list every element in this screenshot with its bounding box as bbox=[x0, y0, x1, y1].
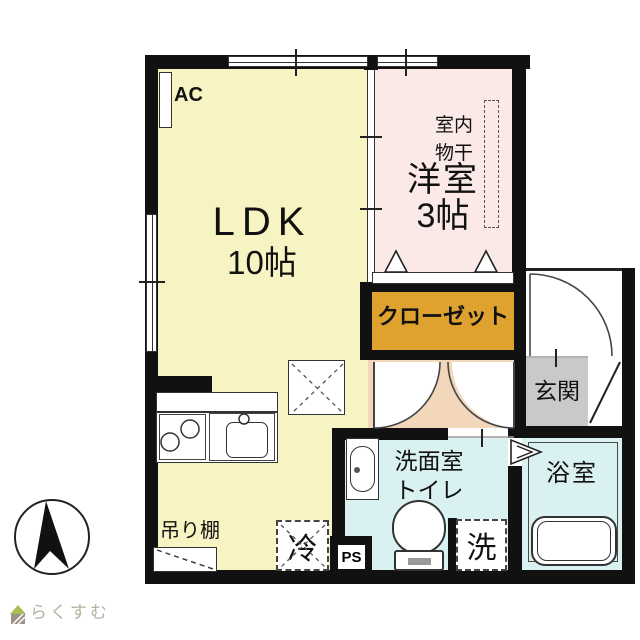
refrigerator-label: 冷 bbox=[288, 524, 318, 568]
washer-space: 洗 bbox=[456, 519, 507, 571]
entrance-door-swing-area bbox=[526, 270, 622, 358]
house-icon bbox=[10, 605, 26, 624]
wall-wing-top-line bbox=[526, 268, 622, 271]
north-compass-icon bbox=[15, 500, 89, 574]
closet-label: クローゼット bbox=[360, 305, 526, 329]
overhead-cupboard bbox=[288, 360, 345, 415]
wall-kitchen-stub bbox=[150, 376, 212, 392]
wall-bottom bbox=[145, 570, 635, 584]
washroom-line1: 洗面室 bbox=[350, 447, 508, 476]
window-top-western bbox=[377, 56, 438, 67]
entrance-label: 玄関 bbox=[526, 379, 588, 404]
hanging-shelf-box bbox=[153, 547, 217, 572]
bathtub-inner bbox=[537, 521, 611, 561]
indoor-drying-line1: 室内 bbox=[416, 112, 492, 140]
pipe-space-box: PS bbox=[336, 543, 367, 571]
ldk-room-label: LDK bbox=[156, 200, 368, 244]
washroom-line2: トイレ bbox=[350, 476, 508, 505]
bathroom-label: 浴室 bbox=[522, 461, 622, 487]
pipe-space-label: PS bbox=[341, 549, 361, 566]
wall-right-main bbox=[512, 55, 526, 292]
toilet-bowl bbox=[392, 500, 446, 554]
ldk-size-label: 10帖 bbox=[156, 245, 368, 281]
ldk-name: LDK bbox=[213, 200, 312, 244]
wall-bath-separator bbox=[508, 466, 522, 570]
refrigerator-space: 冷 bbox=[276, 520, 329, 571]
entrance-door-box bbox=[588, 358, 622, 426]
western-room-size: 3帖 bbox=[374, 198, 512, 235]
kitchen-sink-basin bbox=[226, 422, 268, 458]
indoor-drying-note: 室内 物干 bbox=[416, 112, 492, 167]
floorplan-canvas: AC 吊り棚 冷 洗 PS LDK 10帖 室内 物干 洋室 3帖 クローゼット… bbox=[0, 0, 640, 640]
window-top-ldk bbox=[228, 56, 368, 67]
kitchen-stove-unit bbox=[159, 414, 206, 460]
hallway bbox=[368, 360, 514, 428]
hanging-shelf-label: 吊り棚 bbox=[160, 520, 220, 542]
wall-entrance-bath bbox=[522, 426, 635, 438]
washer-label: 洗 bbox=[467, 523, 497, 567]
western-room-label: 洋室 bbox=[374, 162, 512, 199]
washroom-label: 洗面室 トイレ bbox=[350, 447, 508, 505]
closet-sliding-track bbox=[372, 272, 514, 284]
watermark-brand: らくすむ bbox=[30, 604, 110, 623]
ac-label: AC bbox=[174, 84, 203, 106]
ac-unit bbox=[159, 72, 172, 128]
wall-hall-entrance bbox=[514, 360, 526, 428]
toilet-base-slot bbox=[408, 558, 431, 565]
wall-bath-separator-top bbox=[508, 426, 522, 438]
